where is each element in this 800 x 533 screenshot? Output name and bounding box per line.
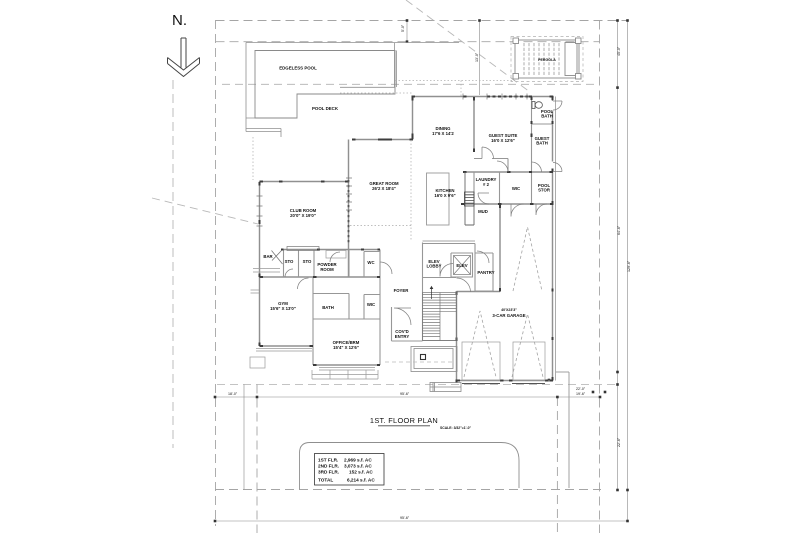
svg-text:40'X23'3"3-CAR GARAGE: 40'X23'3"3-CAR GARAGE [492, 308, 525, 318]
svg-text:PERGOLA: PERGOLA [538, 58, 556, 62]
svg-text:FOYER: FOYER [394, 288, 410, 293]
svg-text:ELEV: ELEV [456, 263, 467, 268]
svg-text:LAUNDRY# 2: LAUNDRY# 2 [476, 177, 497, 187]
svg-text:22'-6": 22'-6" [617, 437, 621, 447]
svg-text:BATH: BATH [322, 305, 334, 310]
svg-text:STO: STO [303, 259, 312, 264]
svg-text:GYM15'6" X 13'0": GYM15'6" X 13'0" [270, 301, 296, 311]
svg-text:POOLSTOR: POOLSTOR [538, 183, 551, 193]
svg-text:6,214 s.f. AC: 6,214 s.f. AC [347, 478, 375, 483]
svg-text:KITCHEN16'0 X 9'6": KITCHEN16'0 X 9'6" [434, 188, 455, 198]
svg-text:95'-6": 95'-6" [400, 392, 410, 396]
svg-text:1ST FLR.: 1ST FLR. [318, 458, 338, 463]
svg-text:22'-0": 22'-0" [576, 387, 586, 391]
svg-text:WIC: WIC [512, 186, 520, 191]
svg-text:3,073 s.f. AC: 3,073 s.f. AC [344, 464, 372, 469]
svg-text:OFFICE/BRM15'4" X 12'6": OFFICE/BRM15'4" X 12'6" [333, 340, 360, 350]
svg-text:PANTRY: PANTRY [477, 270, 494, 275]
svg-text:WIC: WIC [367, 302, 375, 307]
svg-text:POOL DECK: POOL DECK [312, 106, 339, 111]
svg-text:2,969 s.f. AC: 2,969 s.f. AC [344, 458, 372, 463]
svg-text:EDGELESS POOL: EDGELESS POOL [279, 66, 317, 71]
svg-text:COV'DENTRY: COV'DENTRY [395, 329, 410, 339]
svg-text:19'-6": 19'-6" [576, 392, 586, 396]
svg-text:152 s.f. AC: 152 s.f. AC [349, 470, 373, 475]
svg-text:GUEST SUITE16'0 X 12'6": GUEST SUITE16'0 X 12'6" [489, 133, 518, 143]
svg-text:1ST. FLOOR PLAN: 1ST. FLOOR PLAN [370, 416, 438, 425]
svg-text:129'-6": 129'-6" [627, 260, 631, 272]
svg-text:MUD: MUD [478, 209, 488, 214]
svg-text:DINING17'6 X 14'2: DINING17'6 X 14'2 [432, 126, 454, 136]
svg-text:95'-6": 95'-6" [400, 516, 410, 520]
svg-text:POOLBATH: POOLBATH [541, 109, 554, 119]
svg-text:2ND FLR.: 2ND FLR. [318, 464, 339, 469]
svg-text:STO: STO [285, 259, 294, 264]
svg-text:SCALE: 3/32"=1'-0": SCALE: 3/32"=1'-0" [440, 426, 471, 430]
svg-text:POWDERROOM: POWDERROOM [317, 262, 337, 272]
svg-text:GUESTBATH: GUESTBATH [535, 136, 550, 146]
svg-text:GREAT ROOM26'2 X 18'4": GREAT ROOM26'2 X 18'4" [369, 181, 399, 191]
svg-text:ELEVLOBBY: ELEVLOBBY [426, 259, 441, 269]
svg-text:18'-0": 18'-0" [228, 392, 238, 396]
svg-text:64'-6": 64'-6" [617, 225, 621, 235]
svg-text:3RD FLR.: 3RD FLR. [318, 470, 339, 475]
svg-text:5'-0": 5'-0" [401, 24, 405, 32]
svg-text:13'-0": 13'-0" [475, 52, 479, 62]
svg-text:TOTAL: TOTAL [318, 478, 333, 483]
svg-text:45'-0": 45'-0" [617, 46, 621, 56]
svg-text:CLUB ROOM20'0" X 19'0": CLUB ROOM20'0" X 19'0" [290, 208, 317, 218]
svg-text:BAR: BAR [263, 254, 273, 259]
svg-text:WC: WC [367, 260, 374, 265]
svg-text:N.: N. [172, 12, 187, 29]
